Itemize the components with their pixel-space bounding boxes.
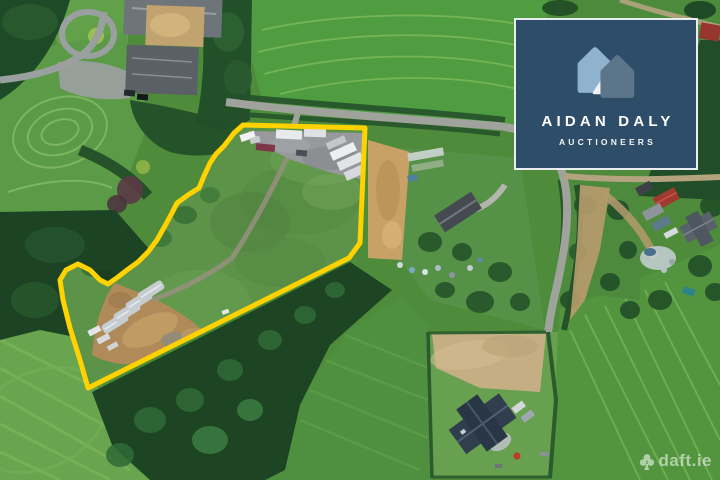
houses-logo-icon xyxy=(574,37,638,103)
watermark: daft.ie xyxy=(639,451,712,471)
garden-item xyxy=(514,453,521,460)
aerial-property-photo: AIDAN DALY AUCTIONEERS daft.ie xyxy=(0,0,720,480)
east-lane xyxy=(564,176,720,179)
parked-car xyxy=(137,94,148,101)
watermark-label: daft.ie xyxy=(658,451,712,471)
auctioneer-badge: AIDAN DALY AUCTIONEERS xyxy=(514,18,698,170)
parked-car xyxy=(124,90,135,97)
badge-title: AIDAN DALY xyxy=(537,113,674,130)
daft-logo-icon xyxy=(639,453,655,470)
badge-subtitle: AUCTIONEERS xyxy=(556,137,656,147)
detached-house-parcel xyxy=(428,332,558,478)
